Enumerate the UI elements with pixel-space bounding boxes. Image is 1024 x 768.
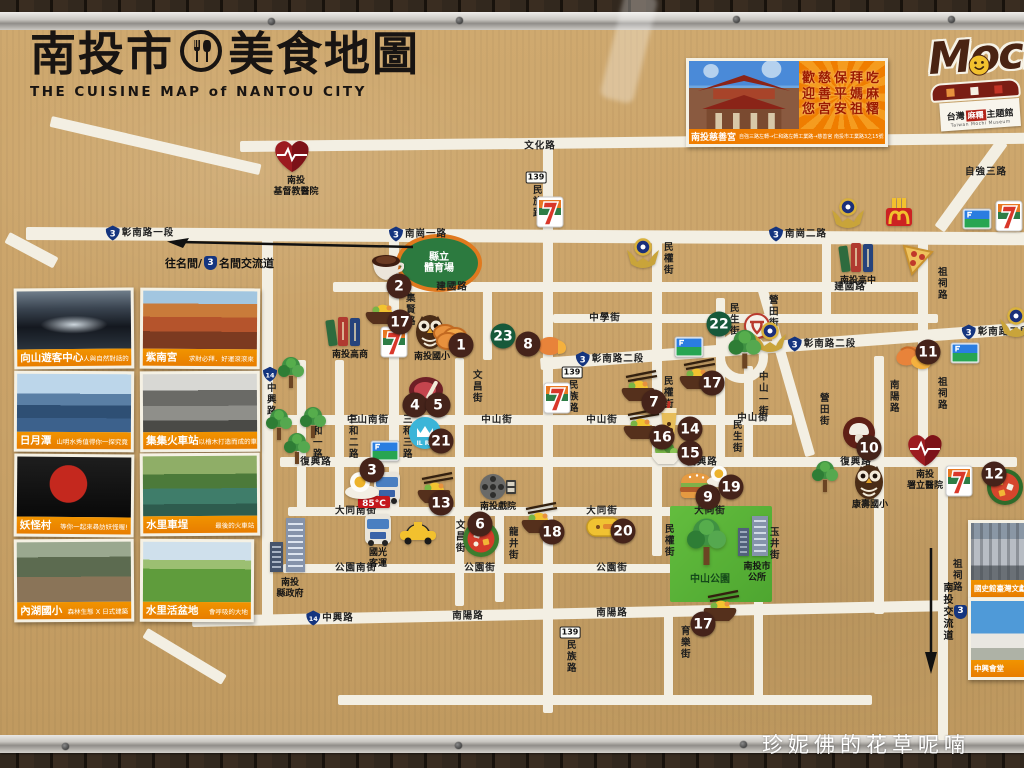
road	[338, 695, 872, 705]
svg-text:14: 14	[265, 371, 275, 379]
road-label: 育樂街	[679, 626, 689, 661]
route-3-shield: 3	[204, 256, 217, 270]
slogan-row: 迎善平媽麻	[802, 88, 882, 103]
landmark-label: 南投 署立醫院	[907, 470, 943, 493]
attraction-photo	[143, 456, 257, 517]
sweet-icon	[994, 85, 1003, 94]
dumpling-icon	[536, 332, 568, 358]
landmark-label: 南投市 公所	[743, 562, 770, 585]
sweet-icon	[970, 87, 979, 96]
seven-icon	[536, 196, 564, 228]
signboard-photo: 中山公園縣立體育場南投 基督教醫院南投高商南投國小南投高中南投戲院國光 客運85…	[0, 0, 1024, 768]
slogan-row: 歡慈保拜吃	[802, 72, 882, 87]
road-label: 三和二路	[347, 414, 357, 460]
attraction-caption-bar: 日月潭山明水秀值得你一探究竟	[17, 432, 131, 450]
watermark: 珍妮佛的花草呢喃	[762, 729, 970, 759]
road-label: 自強三路	[965, 167, 1007, 177]
attraction-photo	[143, 291, 257, 350]
road	[822, 239, 831, 317]
svg-text:14: 14	[309, 615, 319, 623]
temple-name: 南投慈善宮	[691, 130, 736, 143]
road-label: 祖祠路	[936, 377, 946, 412]
attraction-caption-bar: 妖怪村等你一起來尋訪妖怪喔!	[17, 517, 131, 535]
attraction-caption: 人與自然對話的「秘境」	[83, 352, 131, 363]
mcd-icon	[884, 196, 914, 228]
pizzaslice-icon	[900, 242, 934, 276]
marker-16: 16	[650, 425, 675, 450]
road-label: 文昌街	[471, 370, 481, 405]
landmark-label: 南投國小	[414, 352, 450, 363]
film-icon	[478, 472, 518, 504]
route-139-shield: 139	[562, 366, 583, 378]
sweet-icon	[946, 88, 955, 97]
attraction-name: 內湖國小	[20, 603, 62, 618]
road-label: 民權街	[662, 242, 672, 277]
marker-15: 15	[678, 441, 703, 466]
tree-icon	[684, 514, 729, 568]
landmark-label: 南投 基督教醫院	[273, 176, 318, 199]
owl-icon	[852, 462, 886, 500]
attraction-name: 水里活盆地	[146, 603, 199, 618]
marker-12: 12	[982, 462, 1007, 487]
marker-22: 22	[707, 312, 732, 337]
marker-11: 11	[916, 340, 941, 365]
attraction-caption-bar: 水里車埕最後的火車站	[143, 516, 257, 534]
route-3-shield: 3	[769, 227, 783, 242]
svg-text:3: 3	[966, 329, 972, 339]
road-label: 3彰南路二段	[576, 352, 645, 367]
fork-spoon-icon	[180, 30, 222, 72]
marker-1: 1	[449, 333, 474, 358]
attraction-card: 妖怪村等你一起來尋訪妖怪喔!	[14, 453, 135, 537]
temple-promo-card: 歡慈保拜吃迎善平媽麻您宮安祖糬 南投慈善宮 自強三路左轉→仁和路左轉工業路→慈善…	[686, 58, 888, 147]
road-label: 14中興路	[306, 611, 354, 626]
marker-19: 19	[719, 475, 744, 500]
landmark-label: 南投 縣政府	[276, 578, 303, 601]
road-label: 中學街	[589, 313, 621, 323]
road-label: 南陽路	[596, 608, 628, 618]
attraction-name: 集集火車站	[146, 433, 199, 448]
road-label: 3南崗二路	[769, 227, 827, 242]
road-label: 3彰南路一段	[106, 226, 175, 241]
attraction-caption: 等你一起來尋訪妖怪喔!	[60, 520, 128, 531]
road-label: 龍井街	[507, 527, 517, 562]
road-label: 3彰南路二段	[788, 337, 857, 352]
park-label: 中山公園	[690, 570, 730, 585]
temple-photo	[689, 61, 799, 129]
road-label: 公園街	[464, 563, 496, 573]
attraction-caption-bar: 中興會堂	[971, 660, 1024, 677]
seven-icon	[543, 382, 571, 414]
title-zh-right: 美食地圖	[228, 18, 420, 84]
route-3-shield: 3	[788, 337, 802, 352]
famima-icon	[674, 336, 704, 358]
road	[240, 133, 1024, 152]
tree-icon	[276, 354, 306, 390]
marker-18: 18	[540, 520, 565, 545]
attraction-card: 日月潭山明水秀值得你一探究竟	[14, 371, 134, 453]
attraction-card: 中興會堂	[968, 598, 1024, 680]
route-139-shield: 139	[526, 171, 547, 183]
marker-8: 8	[516, 332, 541, 357]
attraction-name: 水里車埕	[146, 517, 188, 532]
landmark-label: 南投戲院	[480, 502, 516, 513]
marker-9: 9	[696, 485, 721, 510]
road-label: 中山街	[481, 415, 513, 425]
marker-20: 20	[611, 519, 636, 544]
road-label: 中山街	[586, 415, 618, 425]
marker-2: 2	[387, 274, 412, 299]
road-label: 建國路	[436, 282, 468, 292]
route-3-shield: 3	[576, 352, 590, 367]
page-title: 南投市 美食地圖 THE CUISINE MAP of NANTOU CITY	[30, 18, 420, 100]
attraction-caption-bar: 紫南宮求財必拜．好運滾滾來	[143, 349, 257, 367]
tree-icon	[282, 430, 312, 466]
road	[335, 360, 344, 513]
attraction-card: 集集火車站以檜木打造而成的車站	[140, 371, 260, 453]
smiley-icon	[968, 54, 990, 76]
arrow-west-suffix: 名間交流道	[219, 255, 274, 271]
marker-17: 17	[700, 371, 725, 396]
temple-caption-bar: 南投慈善宮 自強三路左轉→仁和路左轉工業路→慈善宮 南投市工業路3之15號	[689, 129, 885, 144]
attraction-caption: 森林生態 X 日式建築	[68, 605, 129, 615]
attraction-photo	[17, 291, 132, 350]
attraction-name: 國史館臺灣文獻館	[974, 583, 1024, 594]
svg-text:85°C: 85°C	[362, 499, 386, 509]
heart-icon	[272, 138, 312, 174]
tree-icon	[810, 458, 840, 494]
seven-icon	[945, 465, 973, 497]
attraction-photo	[971, 523, 1024, 580]
marker-7: 7	[642, 390, 667, 415]
road	[455, 358, 464, 606]
govt-icon	[268, 516, 312, 574]
marker-5: 5	[426, 393, 451, 418]
marker-3: 3	[360, 458, 385, 483]
left-arrow-icon	[165, 238, 417, 251]
arrow-west-prefix: 往名間/	[165, 255, 202, 271]
attraction-caption: 求財必拜．好運滾滾來	[189, 352, 254, 362]
landmark-label: 南投高商	[332, 350, 368, 361]
attraction-photo	[143, 374, 257, 433]
cityhall-icon	[736, 514, 772, 560]
police-icon	[998, 305, 1024, 337]
attraction-card: 內湖國小森林生態 X 日式建築	[14, 539, 135, 623]
attraction-caption: 以檜木打造而成的車站	[199, 435, 258, 445]
attraction-card: 紫南宮求財必拜．好運滾滾來	[140, 288, 261, 370]
marker-17: 17	[691, 612, 716, 637]
attraction-card: 國史館臺灣文獻館	[968, 520, 1024, 600]
title-zh-left: 南投市	[30, 18, 174, 84]
attraction-card: 向山遊客中心人與自然對話的「秘境」	[14, 287, 135, 369]
heart-icon	[905, 432, 945, 468]
route-3-shield: 3	[954, 605, 967, 619]
attraction-name: 向山遊客中心	[20, 350, 83, 366]
road	[664, 610, 673, 698]
road-label: 139民族路	[560, 626, 581, 673]
temple-slogan: 歡慈保拜吃迎善平媽麻您宮安祖糬	[799, 61, 885, 129]
marker-14: 14	[678, 417, 703, 442]
road	[142, 628, 227, 685]
marker-21: 21	[429, 429, 454, 454]
attraction-caption-bar: 集集火車站以檜木打造而成的車站	[143, 432, 257, 450]
route-3-shield: 3	[962, 325, 976, 340]
road	[192, 600, 944, 627]
attraction-name: 紫南宮	[146, 350, 178, 365]
attraction-photo	[971, 601, 1024, 660]
marker-13: 13	[429, 491, 454, 516]
mochi-museum-tag: 台灣麻糬主題館 Taiwan Mochi Museum	[939, 98, 1021, 132]
down-arrow-icon	[924, 548, 938, 676]
attraction-card: 水里車埕最後的火車站	[140, 453, 261, 537]
svg-text:3: 3	[792, 341, 798, 351]
attraction-caption-bar: 國史館臺灣文獻館	[971, 580, 1024, 597]
marker-6: 6	[468, 512, 493, 537]
attraction-photo	[17, 542, 131, 603]
arrow-se-suffix: 南投交流道	[939, 582, 954, 642]
police-icon	[625, 236, 661, 268]
marker-10: 10	[857, 436, 882, 461]
road-label: 民權街	[663, 524, 673, 559]
slogan-row: 您宮安祖糬	[802, 103, 882, 118]
attraction-photo	[17, 457, 132, 518]
road-label: 南陽路	[888, 380, 898, 415]
seven-icon	[995, 200, 1023, 232]
road-label: 公園街	[596, 563, 628, 573]
landmark-label: 南投高中	[840, 276, 876, 287]
road-label: 營田街	[818, 393, 828, 428]
tree-icon	[726, 326, 764, 371]
road	[50, 116, 262, 175]
attraction-caption-bar: 水里活盆地會呼吸的大地	[143, 602, 251, 620]
police-icon	[830, 196, 866, 228]
attraction-name: 妖怪村	[20, 518, 52, 533]
route-14-shield: 14	[263, 367, 277, 382]
svg-text:3: 3	[580, 356, 586, 366]
taxi-icon	[398, 520, 438, 546]
attraction-caption-bar: 內湖國小森林生態 X 日式建築	[17, 602, 131, 620]
marker-4: 4	[403, 393, 428, 418]
attraction-caption: 山明水秀值得你一探究竟	[56, 435, 128, 445]
route-139-shield: 139	[560, 626, 581, 638]
attraction-caption-bar: 向山遊客中心人與自然對話的「秘境」	[17, 349, 131, 367]
temple-directions: 自強三路左轉→仁和路左轉工業路→慈善宮 南投市工業路3之15號	[739, 133, 884, 140]
attraction-name: 日月潭	[20, 433, 52, 448]
road-label: 民生街	[731, 420, 741, 455]
bus-icon	[363, 512, 393, 546]
famima-icon	[950, 342, 980, 364]
books-icon	[838, 240, 878, 274]
interchange-arrow-west: 往名間/ 3 名間交流道	[165, 236, 417, 271]
route-14-shield: 14	[306, 611, 320, 626]
road	[483, 286, 492, 360]
marker-23: 23	[491, 324, 516, 349]
attraction-caption: 會呼吸的大地	[209, 606, 248, 616]
mochi-logo: Mochi 台灣麻糬主題館 Taiwan Mochi Museum	[926, 26, 1024, 85]
attraction-photo	[17, 374, 131, 433]
landmark-label: 國光 客運	[369, 548, 387, 571]
title-en: THE CUISINE MAP of NANTOU CITY	[30, 84, 420, 100]
route-3-shield: 3	[106, 226, 120, 241]
road-label: 文化路	[524, 141, 556, 151]
books-icon	[325, 314, 365, 348]
svg-text:3: 3	[773, 231, 779, 241]
marker-17: 17	[388, 310, 413, 335]
svg-text:3: 3	[110, 230, 116, 240]
attraction-name: 中興會堂	[974, 663, 1004, 674]
road-label: 南陽路	[452, 611, 484, 621]
attraction-card: 水里活盆地會呼吸的大地	[140, 539, 254, 623]
road-label: 中山一街	[757, 371, 767, 417]
famima-icon	[962, 208, 992, 230]
landmark-label: 康壽國小	[852, 500, 888, 511]
road-label: 祖祠路	[936, 267, 946, 302]
attraction-photo	[143, 542, 251, 603]
attraction-caption: 最後的火車站	[215, 519, 254, 529]
